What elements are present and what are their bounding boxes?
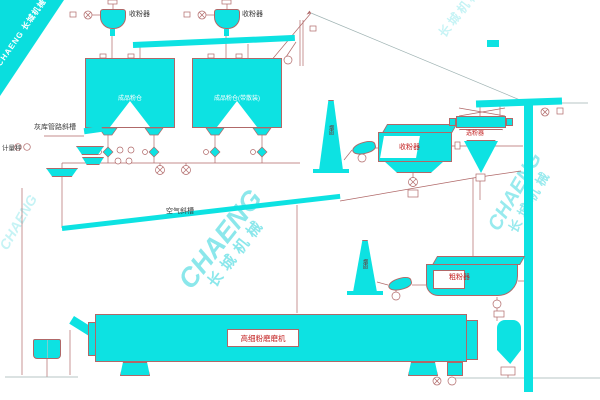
bucket-elevator	[524, 104, 533, 392]
watermark-brand: CHAENG	[485, 149, 547, 235]
air-slide-label: 空气斜槽	[166, 208, 194, 215]
bag-filter-body: 收粉器	[378, 132, 452, 162]
lower-cyclone	[387, 275, 413, 293]
mill-label-box: 高细粉磨磨机	[227, 329, 299, 347]
product-silo-1: 成品粉仓	[85, 58, 175, 128]
watermark-brand-cn: 长城机械	[195, 202, 279, 304]
process-flow-diagram: CHAENG 长城机械 CHAENG 长城机械 CHAENG 长城机械 长城机械…	[0, 0, 600, 400]
weigh-hopper-1	[76, 146, 104, 155]
mill-outlet-block	[447, 362, 463, 376]
top-dust-collector-1-label: 收粉器	[129, 11, 150, 18]
top-dust-collector-1	[100, 9, 126, 29]
bag-filter-hopper	[384, 161, 444, 173]
watermark-left-edge: CHAENG	[0, 192, 40, 252]
separator-body	[456, 116, 506, 128]
flow-arrow	[307, 11, 312, 15]
top-right-chute-piece	[487, 40, 499, 47]
watermark-brand: CHAENG	[173, 184, 267, 294]
corner-watermark-triangle: CHAENG 长城机械	[0, 0, 64, 96]
mill-support-right	[408, 362, 438, 376]
mill-right-journal	[466, 320, 478, 360]
weigh-hopper-3	[46, 168, 78, 177]
product-silo-2: 成品粉仓(带散装)	[192, 58, 282, 128]
feeder-symbols	[99, 128, 271, 157]
feed-tank-divider	[47, 340, 48, 358]
left-chute-piece	[84, 126, 103, 134]
stack-lower-label: 烟囱	[362, 259, 369, 269]
stack-lower-base	[347, 291, 383, 295]
weigh-hopper-2	[82, 157, 104, 165]
watermark-top-right: 长城机械	[437, 0, 484, 40]
top-air-slide	[133, 35, 295, 48]
stack-upper-base	[313, 169, 349, 173]
silo-1-cone-gap	[110, 101, 150, 127]
elevator-top-strip	[476, 98, 562, 108]
watermark-right: CHAENG 长城机械	[485, 149, 558, 241]
coarse-collector-label: 粗粉器	[449, 274, 470, 281]
watermark-brand: CHAENG	[0, 29, 26, 67]
top-dust-collector-2-stem	[224, 29, 229, 36]
silo-2-cone-gap	[217, 101, 257, 127]
separator-label: 选粉器	[466, 131, 484, 137]
coarse-collector-body: 粗粉器	[426, 264, 518, 296]
left-chute-label: 灰库管路斜槽	[34, 124, 76, 131]
mill-label: 高细粉磨磨机	[241, 333, 286, 344]
separator-knob-left	[449, 118, 456, 126]
discharge-bin-cone	[497, 350, 521, 364]
top-dust-collector-1-stem	[110, 29, 115, 36]
stack-lower: 烟囱	[352, 240, 378, 292]
stack-upper-label: 烟囱	[328, 125, 335, 135]
feed-tank	[33, 339, 61, 359]
weigher-label: 计量秤	[2, 146, 22, 153]
watermark-brand: CHAENG	[0, 192, 40, 253]
separator-knob-right	[506, 118, 513, 126]
watermark-brand-cn: 长城机械	[436, 0, 484, 40]
top-dust-collector-2	[214, 9, 240, 29]
stack-upper: 烟囱	[318, 100, 344, 170]
bag-filter-label: 收粉器	[399, 144, 420, 151]
separator-cone	[464, 141, 498, 173]
top-dust-collector-2-label: 收粉器	[242, 11, 263, 18]
upper-cyclone	[351, 139, 377, 157]
ball-mill-body: 高细粉磨磨机	[95, 314, 467, 362]
mill-support-left	[120, 362, 150, 376]
main-air-slide	[62, 194, 341, 231]
watermark-brand-cn: 长城机械	[20, 0, 48, 32]
discharge-bin-body	[497, 320, 521, 350]
corner-watermark-text: CHAENG 长城机械	[0, 0, 72, 68]
